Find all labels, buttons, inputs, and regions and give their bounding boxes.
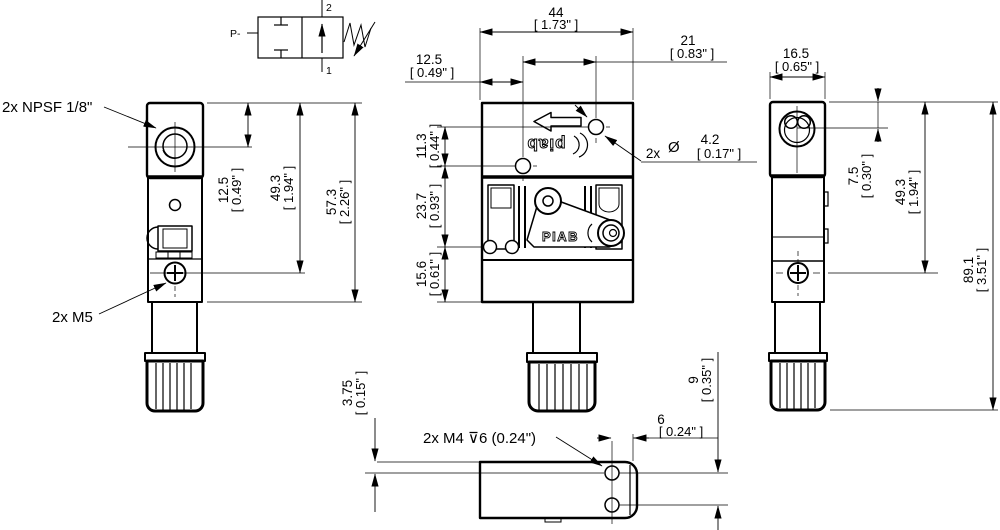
dim-6-in: [ 0.24" ] (659, 424, 703, 439)
dim-21-in: [ 0.83" ] (670, 46, 714, 61)
symbol-port-2-label: 2 (326, 2, 332, 14)
phillips-screw-right (776, 251, 820, 296)
technical-drawing-sheet: 2 1 P- (0, 0, 1000, 530)
left-side-view (145, 103, 205, 411)
dim-3-75: 3.75 [ 0.15" ] (340, 371, 368, 415)
dim-7-5: 7.5 [ 0.30" ] (846, 154, 874, 198)
phillips-screw (165, 263, 186, 298)
adjustment-stem-front (533, 302, 580, 353)
m4-thread-callout: 2x M4 ⊽6 (0.24") (423, 430, 536, 447)
bottom-view (480, 441, 637, 524)
dimension-drawing: 2 1 P- (0, 0, 1000, 530)
svg-text:[ 0.49" ]: [ 0.49" ] (229, 168, 244, 212)
dim-12-5-top-in: [ 0.49" ] (410, 65, 454, 80)
right-side-view (769, 102, 828, 410)
latch-clip (147, 226, 192, 258)
spring-adjust-arrow-icon (354, 22, 375, 56)
svg-text:piab: piab (527, 135, 566, 154)
dim-15-6: 15.6 [ 0.61" ] (414, 252, 442, 296)
dim-12-5-left: 12.5 [ 0.49" ] (216, 168, 244, 212)
svg-text:[ 2.26" ]: [ 2.26" ] (337, 180, 352, 224)
knurled-knob (145, 353, 205, 411)
svg-text:[ 0.30" ]: [ 0.30" ] (859, 154, 874, 198)
npsf-port-callout: 2x NPSF 1/8" (2, 99, 92, 116)
label-panel: PIAB (484, 185, 625, 254)
direction-arrow-icon (534, 113, 581, 132)
dim-49-3-left: 49.3 [ 1.94" ] (268, 166, 296, 210)
adjustment-stem-right (775, 302, 820, 353)
dim-49-3-right: 49.3 [ 1.94" ] (893, 170, 921, 214)
svg-text:[ 0.35" ]: [ 0.35" ] (699, 358, 714, 402)
svg-text:[ 1.94" ]: [ 1.94" ] (281, 166, 296, 210)
svg-text:[ 1.94" ]: [ 1.94" ] (906, 170, 921, 214)
hole-diameter-callout: 2x Ø 4.2 [ 0.17" ] (575, 105, 757, 162)
dim-57-3: 57.3 [ 2.26" ] (324, 180, 352, 224)
m5-leader-line (99, 283, 166, 314)
dim-9: 9 [ 0.35" ] (686, 358, 714, 402)
label-screw-left (484, 241, 497, 254)
front-view: piab (482, 103, 633, 411)
dim-11-3: 11.3 [ 0.44" ] (414, 124, 442, 168)
symbol-port-1-label: 1 (326, 65, 332, 77)
dim-23-7: 23.7 [ 0.93" ] (414, 184, 442, 228)
diameter-symbol: Ø (668, 139, 680, 156)
svg-text:[ 0.44" ]: [ 0.44" ] (427, 124, 442, 168)
dim-89-1: 89.1 [ 3.51" ] (961, 248, 989, 292)
dia-qty: 2x (646, 146, 661, 161)
symbol-pressure-label: P- (230, 28, 241, 40)
piab-top-logo: piab (527, 133, 588, 157)
knurled-knob-right (769, 353, 827, 410)
svg-text:[ 0.93" ]: [ 0.93" ] (427, 184, 442, 228)
mounting-hole-top (589, 120, 611, 144)
vent-hole (170, 200, 181, 211)
dim-16-5-in: [ 0.65" ] (775, 59, 819, 74)
piab-label-logo: PIAB (542, 229, 579, 244)
dim-44-in: [ 1.73" ] (534, 17, 578, 32)
dim-4-2-in: [ 0.17" ] (697, 146, 741, 161)
knurled-knob-front (527, 353, 597, 411)
adjustment-stem (152, 302, 197, 353)
svg-text:[ 0.61" ]: [ 0.61" ] (427, 252, 442, 296)
dim-4-2-mm: 4.2 (701, 132, 720, 147)
vacuum-port-right (780, 106, 815, 173)
m5-screw-callout: 2x M5 (52, 309, 93, 326)
svg-text:[ 3.51" ]: [ 3.51" ] (974, 248, 989, 292)
pneumatic-valve-symbol: 2 1 P- (230, 0, 375, 77)
label-screw-right (506, 241, 519, 254)
svg-text:[ 0.15" ]: [ 0.15" ] (353, 371, 368, 415)
front-view-dimensions: 44 [ 1.73" ] 21 [ 0.83" ] 12.5 [ 0.49" ]… (405, 5, 757, 302)
